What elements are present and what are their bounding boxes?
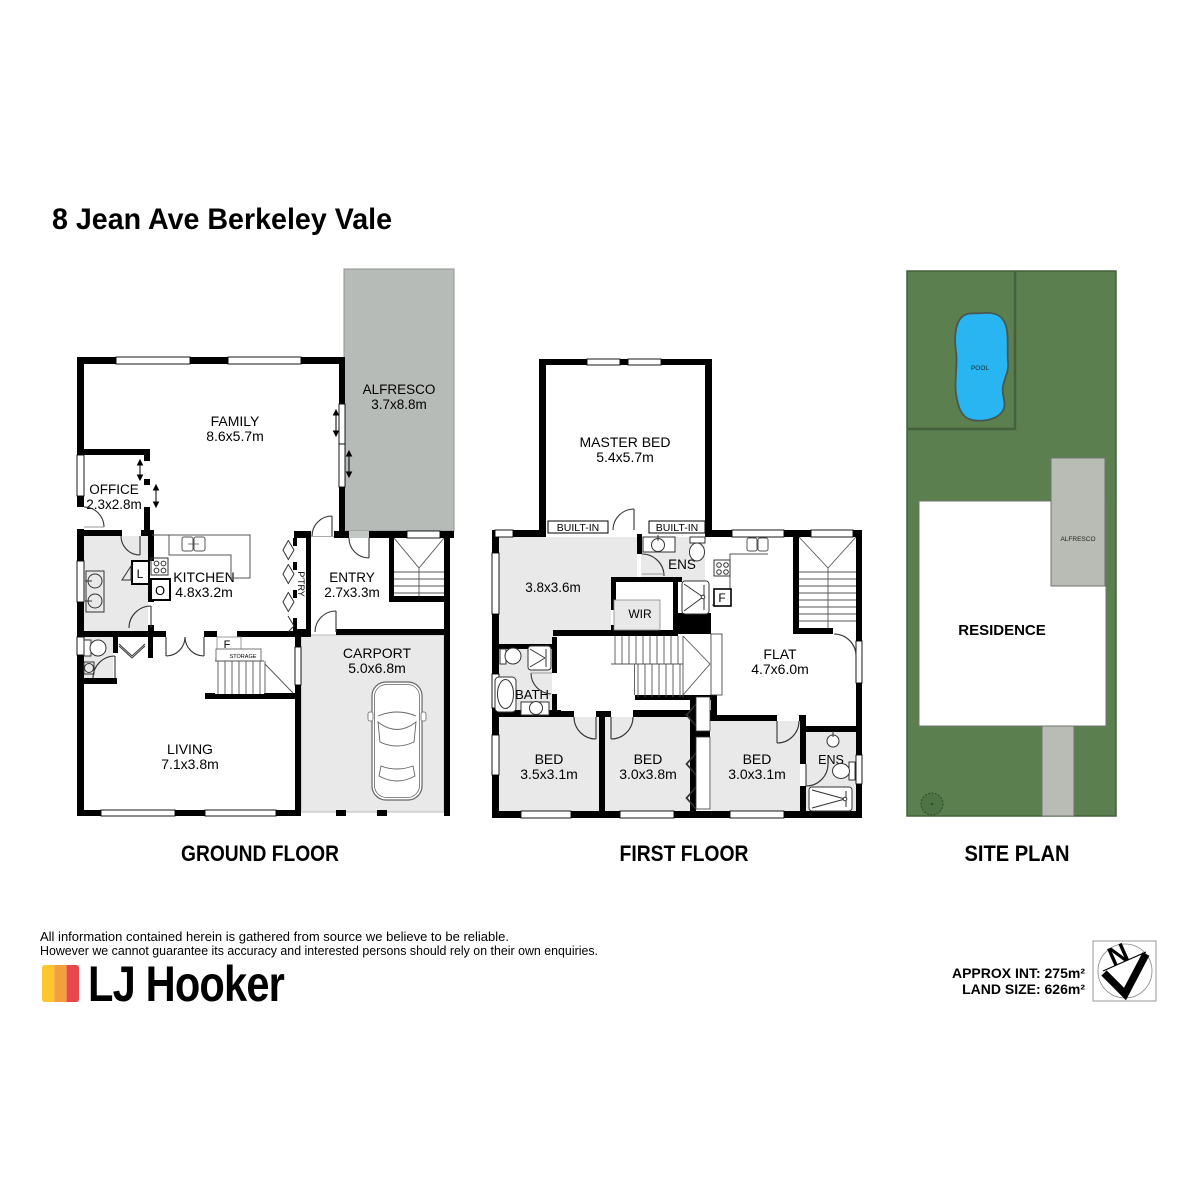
svg-text:All information contained here: All information contained herein is gath… bbox=[40, 929, 509, 944]
svg-text:ENTRY: ENTRY bbox=[329, 570, 375, 585]
svg-text:P'TRY: P'TRY bbox=[296, 571, 306, 597]
svg-text:F: F bbox=[718, 591, 725, 605]
svg-text:BUILT-IN: BUILT-IN bbox=[656, 522, 698, 534]
svg-text:BATH: BATH bbox=[515, 687, 549, 702]
svg-text:MASTER BED: MASTER BED bbox=[579, 434, 670, 450]
svg-text:KITCHEN: KITCHEN bbox=[173, 569, 234, 585]
svg-text:3.8x3.6m: 3.8x3.6m bbox=[525, 580, 581, 595]
svg-text:3.5x3.1m: 3.5x3.1m bbox=[520, 766, 578, 782]
svg-text:8.6x5.7m: 8.6x5.7m bbox=[206, 428, 264, 444]
svg-text:7.1x3.8m: 7.1x3.8m bbox=[161, 756, 219, 772]
svg-text:BED: BED bbox=[535, 751, 564, 767]
svg-text:4.8x3.2m: 4.8x3.2m bbox=[175, 584, 233, 600]
svg-text:4.7x6.0m: 4.7x6.0m bbox=[751, 661, 809, 677]
svg-text:POOL: POOL bbox=[971, 365, 989, 372]
svg-text:BED: BED bbox=[634, 751, 663, 767]
svg-text:BED: BED bbox=[743, 751, 772, 767]
svg-text:WIR: WIR bbox=[628, 607, 652, 621]
svg-text:LAND SIZE: 626m²: LAND SIZE: 626m² bbox=[962, 981, 1085, 997]
svg-text:RESIDENCE: RESIDENCE bbox=[958, 622, 1046, 639]
svg-text:O: O bbox=[155, 583, 165, 598]
svg-text:OFFICE: OFFICE bbox=[89, 482, 139, 497]
svg-text:STORAGE: STORAGE bbox=[230, 654, 257, 660]
svg-text:8 Jean Ave Berkeley Vale: 8 Jean Ave Berkeley Vale bbox=[52, 203, 392, 236]
svg-text:BUILT-IN: BUILT-IN bbox=[557, 522, 599, 534]
svg-text:3.0x3.1m: 3.0x3.1m bbox=[728, 766, 786, 782]
svg-text:CARPORT: CARPORT bbox=[343, 645, 412, 661]
svg-text:L: L bbox=[137, 567, 144, 581]
svg-text:SITE PLAN: SITE PLAN bbox=[965, 841, 1070, 866]
svg-text:3.0x3.8m: 3.0x3.8m bbox=[619, 766, 677, 782]
svg-text:GROUND FLOOR: GROUND FLOOR bbox=[181, 841, 339, 866]
svg-text:5.0x6.8m: 5.0x6.8m bbox=[348, 660, 406, 676]
svg-text:ENS: ENS bbox=[668, 557, 696, 572]
svg-text:APPROX INT: 275m²: APPROX INT: 275m² bbox=[952, 965, 1085, 981]
svg-text:LJ Hooker: LJ Hooker bbox=[88, 956, 284, 1012]
svg-text:FIRST FLOOR: FIRST FLOOR bbox=[620, 841, 749, 866]
svg-text:FAMILY: FAMILY bbox=[211, 413, 260, 429]
svg-text:5.4x5.7m: 5.4x5.7m bbox=[596, 449, 654, 465]
svg-text:LIVING: LIVING bbox=[167, 741, 213, 757]
svg-text:3.7x8.8m: 3.7x8.8m bbox=[371, 397, 427, 412]
svg-text:FLAT: FLAT bbox=[763, 646, 797, 662]
svg-text:ALFRESCO: ALFRESCO bbox=[363, 382, 436, 397]
svg-text:ALFRESCO: ALFRESCO bbox=[1060, 536, 1095, 543]
svg-text:2.7x3.3m: 2.7x3.3m bbox=[324, 585, 380, 600]
